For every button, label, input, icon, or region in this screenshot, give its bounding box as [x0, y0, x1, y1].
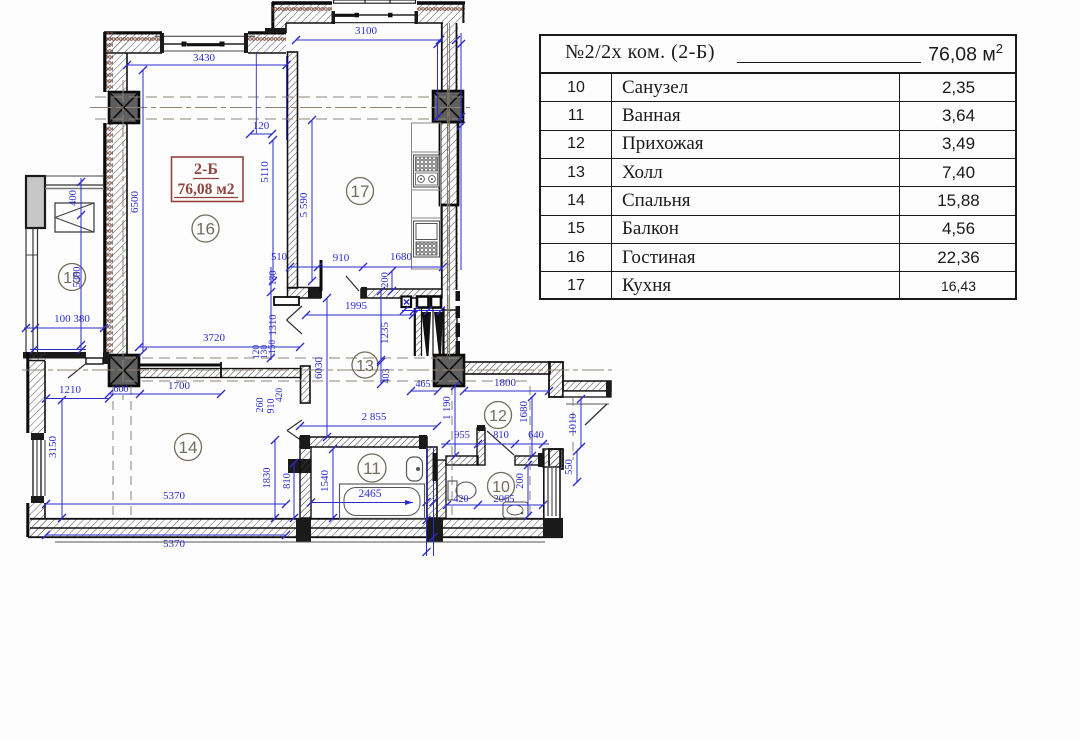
svg-text:6030: 6030 — [313, 357, 325, 380]
svg-text:400: 400 — [68, 190, 79, 206]
svg-text:810: 810 — [282, 473, 293, 489]
svg-text:5 590: 5 590 — [298, 192, 310, 217]
svg-text:2465: 2465 — [359, 488, 382, 500]
svg-text:1010: 1010 — [568, 414, 579, 435]
svg-text:403: 403 — [381, 369, 392, 384]
svg-text:6500: 6500 — [129, 191, 141, 214]
svg-text:1830: 1830 — [262, 468, 273, 489]
svg-text:1 190: 1 190 — [442, 396, 453, 420]
svg-text:1235: 1235 — [379, 322, 391, 345]
svg-text:420: 420 — [275, 388, 285, 403]
svg-text:1680: 1680 — [390, 251, 413, 263]
svg-text:3150: 3150 — [47, 436, 59, 459]
svg-text:1995: 1995 — [345, 300, 368, 312]
svg-text:16: 16 — [196, 220, 215, 239]
svg-text:76,08 м2: 76,08 м2 — [177, 181, 234, 198]
svg-text:1310: 1310 — [268, 315, 279, 336]
svg-text:1540: 1540 — [319, 470, 331, 493]
svg-text:640: 640 — [528, 430, 544, 441]
svg-text:910: 910 — [333, 252, 350, 264]
svg-text:2-Б: 2-Б — [194, 161, 218, 178]
svg-text:3720: 3720 — [203, 332, 226, 344]
svg-text:5370: 5370 — [163, 538, 186, 550]
svg-text:100 380: 100 380 — [54, 313, 90, 325]
svg-text:17: 17 — [351, 182, 370, 201]
svg-text:130: 130 — [268, 271, 279, 286]
svg-text:120: 120 — [252, 345, 262, 360]
svg-text:1700: 1700 — [168, 380, 191, 392]
svg-text:120: 120 — [253, 120, 270, 132]
svg-text:1210: 1210 — [59, 384, 82, 396]
svg-text:5110: 5110 — [259, 161, 271, 183]
svg-text:200: 200 — [515, 473, 526, 489]
svg-text:420: 420 — [454, 494, 469, 505]
svg-text:810: 810 — [493, 430, 509, 441]
svg-text:260: 260 — [255, 398, 266, 413]
svg-text:3430: 3430 — [193, 52, 216, 64]
svg-text:12: 12 — [489, 408, 507, 425]
svg-text:5380: 5380 — [72, 267, 83, 288]
svg-text:600: 600 — [114, 384, 129, 395]
svg-text:465: 465 — [416, 379, 431, 390]
svg-text:3100: 3100 — [355, 25, 378, 37]
svg-text:11: 11 — [363, 459, 381, 478]
svg-text:5370: 5370 — [163, 490, 186, 502]
svg-text:510: 510 — [271, 252, 287, 263]
svg-text:2065: 2065 — [494, 494, 515, 505]
svg-text:200: 200 — [380, 272, 391, 288]
svg-text:955: 955 — [454, 430, 470, 441]
svg-text:1800: 1800 — [494, 377, 517, 389]
svg-text:2 855: 2 855 — [362, 411, 387, 423]
svg-text:1680: 1680 — [518, 401, 530, 424]
svg-text:14: 14 — [179, 438, 198, 457]
svg-text:13: 13 — [356, 358, 374, 375]
svg-text:550: 550 — [564, 459, 575, 475]
